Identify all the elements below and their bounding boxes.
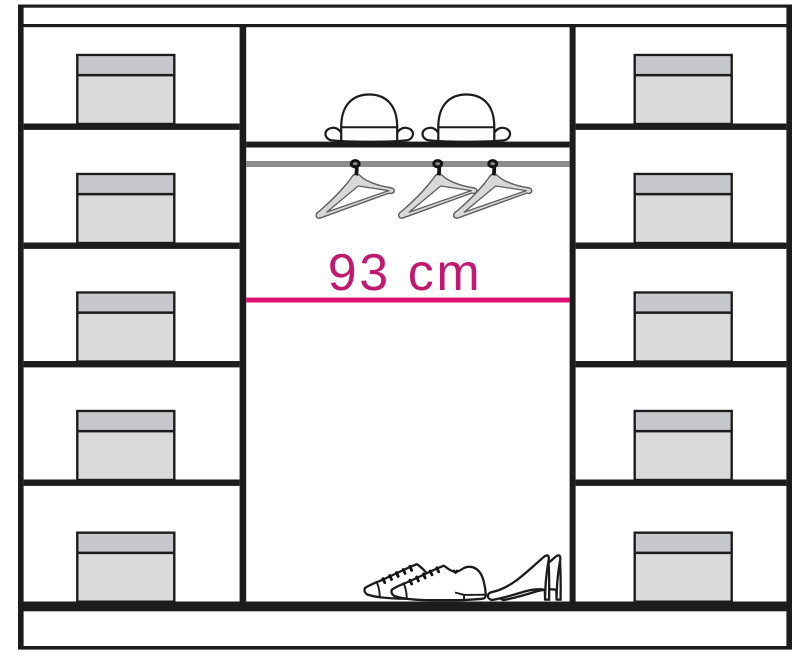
svg-text:93 cm: 93 cm — [328, 244, 483, 302]
